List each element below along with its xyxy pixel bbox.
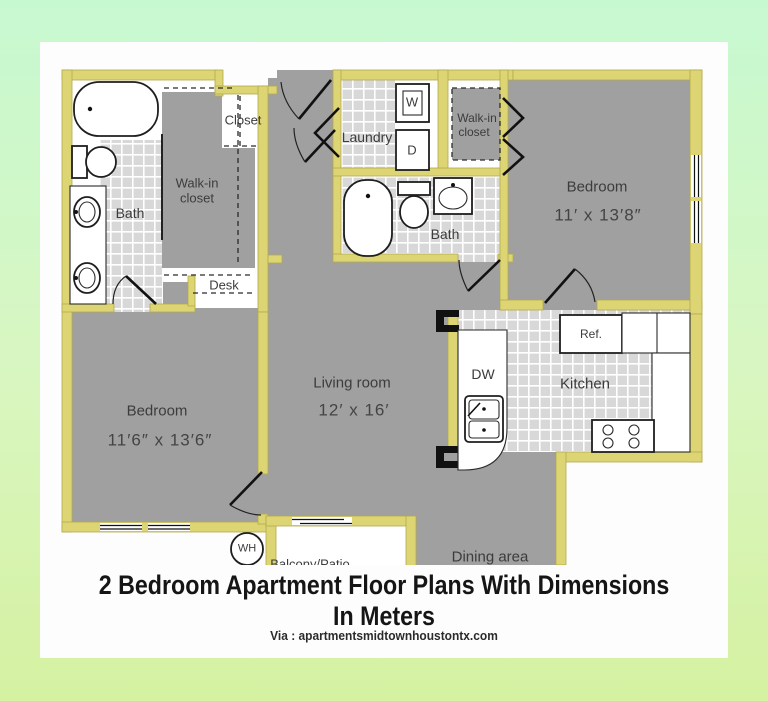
- toilet-icon: [72, 146, 116, 178]
- floorplan-card: Closet Walk-in closet Bath Desk Laundry …: [40, 42, 728, 658]
- bathtub-icon: [74, 82, 158, 136]
- toilet-icon: [398, 182, 430, 228]
- kitchen-sink-icon: [465, 396, 503, 442]
- source-credit: Via : apartmentsmidtownhoustontx.com: [68, 628, 701, 643]
- floor-plan-graphic: [40, 42, 728, 565]
- caption-title: 2 Bedroom Apartment Floor Plans With Dim…: [88, 570, 680, 632]
- bathtub-icon: [344, 180, 392, 256]
- laundry-label: Laundry: [342, 130, 393, 144]
- living-room-label: Living room: [313, 376, 391, 391]
- walkin-right-label-line2: closet: [458, 126, 489, 138]
- walkin-right-label-line1: Walk-in: [457, 112, 497, 124]
- washer-label: W: [406, 96, 418, 109]
- closet-label: Closet: [225, 114, 262, 127]
- bedroom-left-label: Bedroom: [127, 404, 188, 419]
- balcony-label: Balcony/Patio: [270, 558, 350, 566]
- dryer-label: D: [407, 144, 416, 157]
- refrigerator-label: Ref.: [580, 328, 602, 340]
- dishwasher-label: DW: [471, 367, 494, 381]
- dining-area-label: Dining area: [452, 550, 529, 565]
- desk-label: Desk: [209, 279, 239, 292]
- bedroom-right-label: Bedroom: [567, 180, 628, 195]
- stove-icon: [592, 420, 654, 452]
- bath-right-label: Bath: [431, 227, 460, 241]
- walkin-left-label-line2: closet: [180, 192, 214, 205]
- bedroom-left-dimensions: 11′6″ x 13′6″: [108, 432, 213, 449]
- page-background: Closet Walk-in closet Bath Desk Laundry …: [0, 0, 768, 701]
- living-room-dimensions: 12′ x 16′: [318, 402, 389, 419]
- bedroom-right-dimensions: 11′ x 13′8″: [554, 207, 641, 224]
- floor-plan: Closet Walk-in closet Bath Desk Laundry …: [40, 42, 728, 565]
- walkin-left-label-line1: Walk-in: [176, 177, 219, 190]
- kitchen-label: Kitchen: [560, 377, 610, 392]
- bath-left-label: Bath: [116, 206, 145, 220]
- water-heater-label: WH: [238, 544, 256, 555]
- sink-icon: [434, 178, 472, 214]
- vanity-sinks-icon: [70, 186, 106, 304]
